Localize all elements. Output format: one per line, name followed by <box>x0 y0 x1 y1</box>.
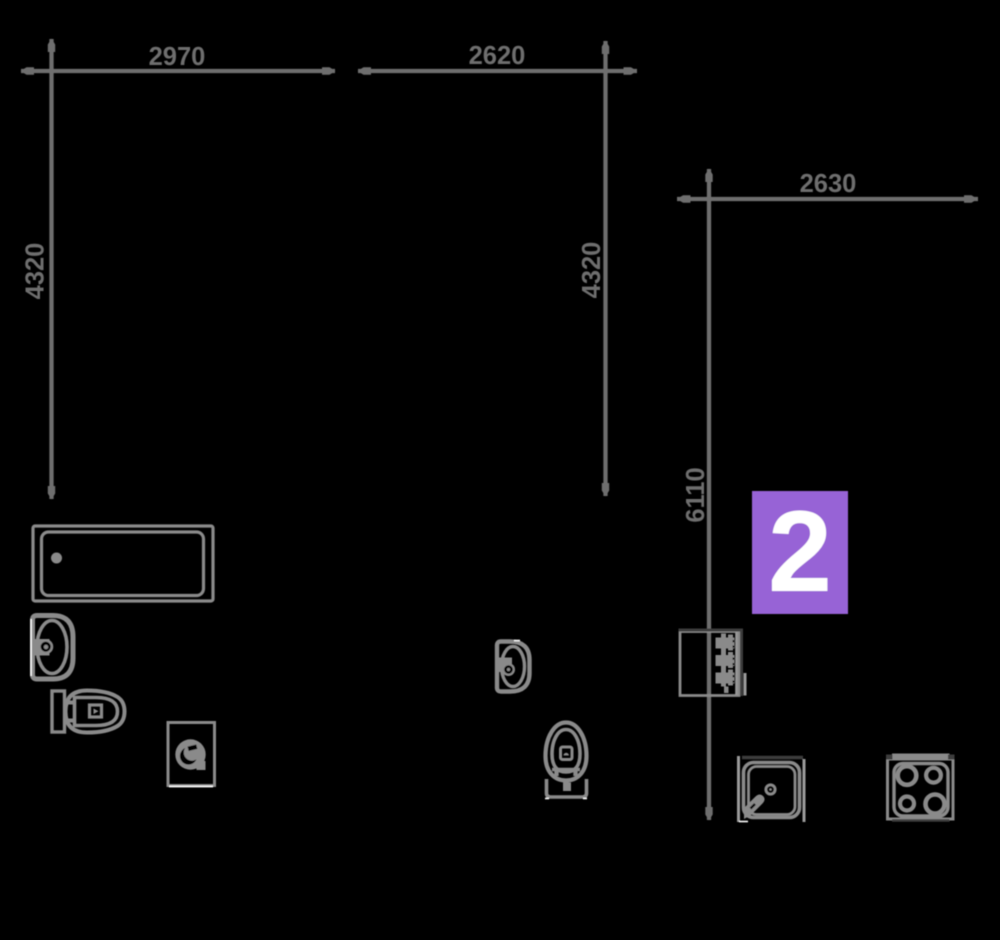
svg-text:4320: 4320 <box>578 242 606 299</box>
svg-text:2: 2 <box>768 488 832 616</box>
svg-text:2970: 2970 <box>149 43 206 71</box>
svg-text:2630: 2630 <box>800 170 857 198</box>
svg-text:4320: 4320 <box>22 243 50 300</box>
svg-text:6110: 6110 <box>682 467 710 522</box>
svg-text:2620: 2620 <box>469 42 526 70</box>
